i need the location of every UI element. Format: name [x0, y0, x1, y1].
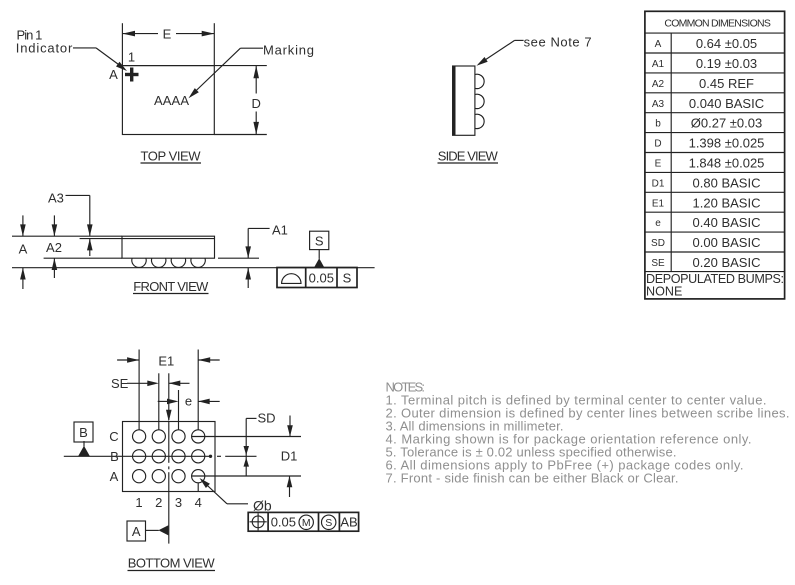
- svg-text:E: E: [163, 26, 172, 41]
- svg-text:1.398 ±0.025: 1.398 ±0.025: [689, 136, 765, 151]
- svg-text:SE: SE: [651, 258, 665, 269]
- svg-text:0.45 REF: 0.45 REF: [699, 76, 754, 91]
- svg-text:0.80 BASIC: 0.80 BASIC: [693, 175, 761, 190]
- svg-text:S: S: [315, 234, 324, 249]
- svg-text:0.19 ±0.03: 0.19 ±0.03: [696, 56, 757, 71]
- svg-text:A: A: [109, 67, 118, 82]
- svg-text:NONE: NONE: [646, 285, 682, 299]
- svg-text:Øb: Øb: [253, 498, 272, 514]
- svg-text:0.05: 0.05: [271, 515, 296, 530]
- svg-text:A2: A2: [46, 240, 62, 255]
- svg-text:7. Front - side finish can be: 7. Front - side finish can be either Bla…: [386, 471, 679, 486]
- svg-text:SE: SE: [111, 376, 129, 391]
- svg-text:D: D: [252, 96, 261, 111]
- svg-text:A3: A3: [48, 191, 64, 206]
- svg-text:1.848 ±0.025: 1.848 ±0.025: [689, 156, 765, 171]
- svg-text:COMMON DIMENSIONS: COMMON DIMENSIONS: [664, 18, 771, 30]
- svg-text:SIDE VIEW: SIDE VIEW: [438, 149, 499, 164]
- svg-text:B: B: [110, 449, 119, 464]
- svg-text:C: C: [109, 429, 118, 444]
- svg-text:B: B: [79, 425, 88, 440]
- svg-text:see Note 7: see Note 7: [524, 35, 592, 50]
- svg-text:1.20 BASIC: 1.20 BASIC: [693, 195, 761, 210]
- svg-text:AB: AB: [340, 515, 357, 530]
- svg-text:Marking: Marking: [263, 43, 314, 58]
- svg-text:e: e: [655, 218, 661, 229]
- svg-text:D: D: [654, 139, 661, 150]
- svg-text:A1: A1: [652, 59, 665, 70]
- svg-text:A2: A2: [652, 79, 665, 90]
- svg-text:E: E: [655, 159, 662, 170]
- svg-text:1: 1: [135, 495, 142, 510]
- svg-text:0.05: 0.05: [309, 271, 334, 286]
- svg-text:b: b: [655, 119, 661, 130]
- svg-text:SD: SD: [651, 238, 665, 249]
- svg-text:0.64 ±0.05: 0.64 ±0.05: [696, 36, 757, 51]
- svg-text:BOTTOM VIEW: BOTTOM VIEW: [128, 556, 216, 571]
- svg-text:0.20 BASIC: 0.20 BASIC: [693, 255, 761, 270]
- svg-text:0.040 BASIC: 0.040 BASIC: [689, 96, 764, 111]
- svg-text:SD: SD: [258, 411, 276, 426]
- svg-text:TOP VIEW: TOP VIEW: [141, 149, 202, 164]
- svg-text:2: 2: [155, 495, 162, 510]
- svg-text:S: S: [343, 271, 352, 286]
- svg-text:E1: E1: [158, 354, 174, 369]
- svg-text:Ø0.27 ±0.03: Ø0.27 ±0.03: [691, 116, 762, 131]
- svg-text:S: S: [325, 517, 332, 529]
- svg-text:A: A: [655, 39, 662, 50]
- svg-text:A1: A1: [272, 223, 288, 238]
- svg-text:AAAA: AAAA: [154, 93, 189, 108]
- svg-text:1: 1: [128, 50, 135, 65]
- svg-text:D1: D1: [652, 178, 665, 189]
- svg-text:A3: A3: [652, 99, 665, 110]
- svg-text:e: e: [185, 394, 192, 409]
- svg-text:FRONT VIEW: FRONT VIEW: [133, 279, 209, 294]
- svg-text:0.00 BASIC: 0.00 BASIC: [693, 235, 761, 250]
- svg-text:3: 3: [175, 495, 182, 510]
- svg-text:M: M: [302, 517, 311, 529]
- svg-text:D1: D1: [281, 449, 298, 464]
- svg-text:A: A: [19, 242, 28, 257]
- svg-text:A: A: [132, 524, 141, 539]
- svg-text:0.40 BASIC: 0.40 BASIC: [693, 215, 761, 230]
- svg-text:A: A: [110, 469, 119, 484]
- svg-text:E1: E1: [652, 198, 665, 209]
- svg-text:Indicator: Indicator: [16, 41, 73, 56]
- svg-text:4: 4: [195, 495, 202, 510]
